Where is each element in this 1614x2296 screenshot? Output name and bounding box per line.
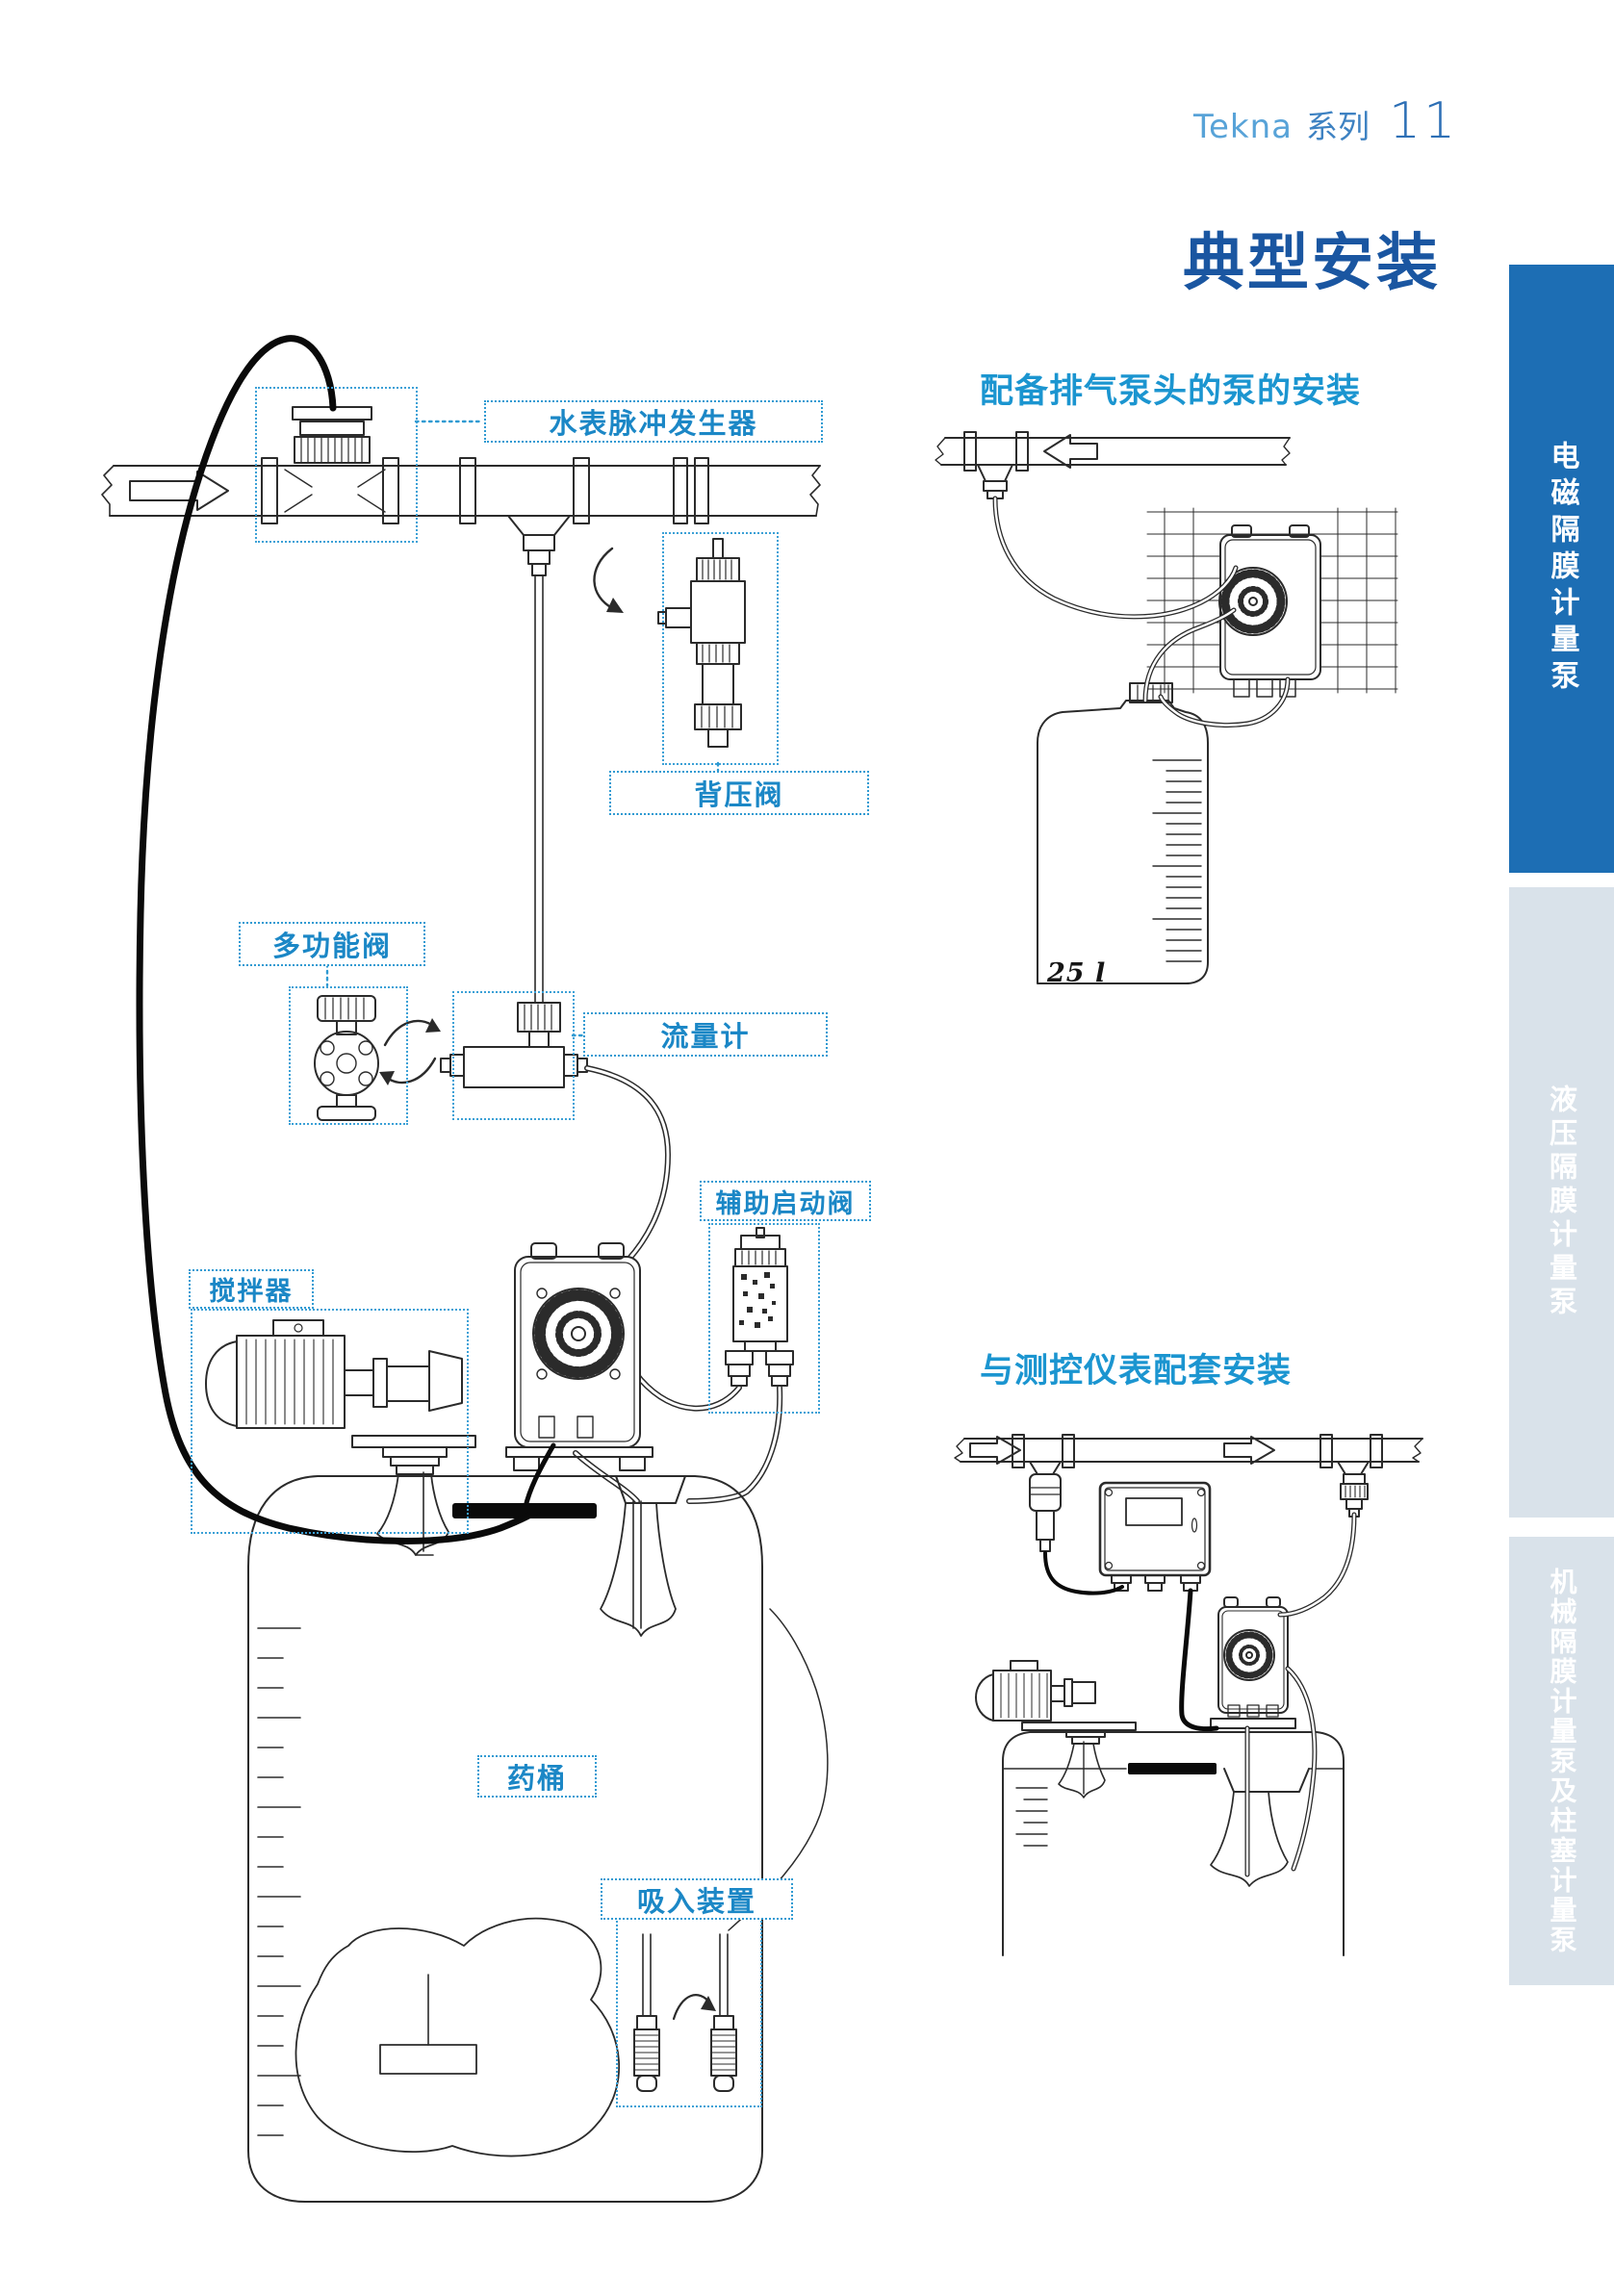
suction-device-outline [616, 1918, 762, 2107]
sidebar-tab-label: 液压隔膜计量泵 [1542, 1084, 1582, 1320]
brand-name: Tekna [1193, 108, 1293, 146]
page-header: Tekna 系列 11 [1193, 92, 1458, 150]
label-text: 流量计 [660, 1014, 750, 1055]
injection-valve [1338, 1462, 1369, 1517]
label-text: 吸入装置 [637, 1879, 756, 1920]
chemical-splash [295, 1919, 619, 2156]
carboy-tank-25l [1038, 683, 1208, 983]
label-text: 药桶 [507, 1756, 567, 1797]
injection-fitting [978, 465, 1012, 498]
instrument-installation-diagram [955, 1435, 1422, 1955]
page-number: 11 [1389, 92, 1458, 150]
metering-pump [506, 1243, 653, 1470]
label-mixer: 搅拌器 [189, 1269, 314, 1309]
label-text: 水表脉冲发生器 [549, 401, 757, 442]
label-multifunction-valve: 多功能阀 [239, 922, 425, 966]
catalog-page: 水表脉冲发生器 背压阀 多功能阀 流量计 辅助启动阀 搅拌器 药桶 吸入装置 T… [0, 0, 1614, 2296]
pipe [955, 1435, 1422, 1467]
mixer-outline [191, 1309, 469, 1534]
section-heading-degassing-pump: 配备排气泵头的泵的安装 [980, 364, 1361, 413]
sidebar-tab-mechanical-diaphragm-plunger-pumps: 机械隔膜计量泵及柱塞计量泵 [1509, 1537, 1614, 1985]
label-auxiliary-priming-valve: 辅助启动阀 [700, 1181, 871, 1221]
sidebar-tab-solenoid-diaphragm-pumps: 电磁隔膜计量泵 [1509, 265, 1614, 873]
label-text: 辅助启动阀 [716, 1183, 856, 1220]
label-back-pressure-valve: 背压阀 [609, 771, 869, 815]
multifunction-valve-outline [289, 986, 408, 1125]
sidebar-tab-label: 机械隔膜计量泵及柱塞计量泵 [1543, 1568, 1581, 1955]
auxiliary-valve-outline [708, 1223, 820, 1414]
label-suction-device: 吸入装置 [601, 1878, 793, 1920]
injection-tee [508, 516, 570, 1003]
water-meter-outline [255, 387, 418, 543]
water-pipe [102, 458, 820, 523]
series-label: 系列 [1306, 101, 1370, 147]
label-text: 背压阀 [694, 773, 783, 813]
flow-arrow [130, 472, 228, 510]
degassing-pump-installation-diagram [935, 432, 1397, 983]
flow-arrow-left [1044, 435, 1097, 468]
section-heading-instruments: 与测控仪表配套安装 [980, 1343, 1292, 1392]
sensor-probe [1030, 1462, 1061, 1551]
back-pressure-valve-outline [662, 532, 779, 765]
controller-unit [1100, 1483, 1210, 1591]
label-chemical-tank: 药桶 [477, 1755, 597, 1798]
flow-meter-outline [452, 991, 575, 1120]
label-water-meter-pulse-generator: 水表脉冲发生器 [484, 400, 823, 443]
rotate-arrow-back-pressure [594, 548, 624, 613]
suction-lance [601, 1476, 685, 1636]
sidebar-tab-label: 电磁隔膜计量泵 [1541, 441, 1583, 697]
sidebar-tab-hydraulic-diaphragm-pumps: 液压隔膜计量泵 [1509, 887, 1614, 1518]
installation-diagram-artwork [0, 0, 1614, 2296]
flow-arrow-2 [1224, 1437, 1274, 1464]
label-text: 搅拌器 [210, 1270, 294, 1308]
label-flow-meter: 流量计 [583, 1012, 828, 1057]
page-title: 典型安装 [1183, 214, 1441, 302]
label-text: 多功能阀 [272, 924, 392, 964]
mounting-bar [1128, 1763, 1217, 1774]
tank-volume-label: 25 l [1047, 958, 1106, 988]
pipe [935, 432, 1290, 471]
